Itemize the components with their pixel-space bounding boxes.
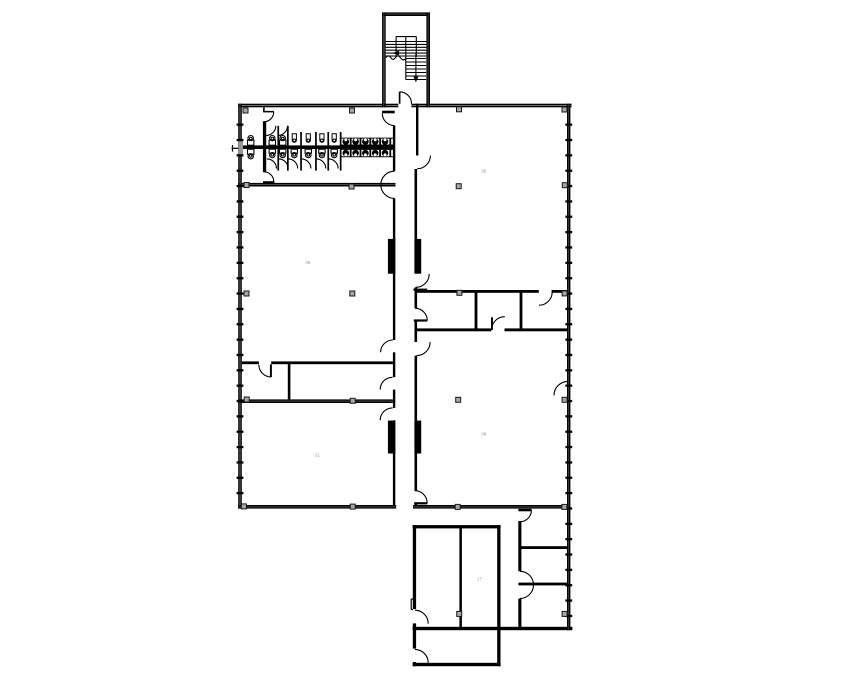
svg-text:06: 06: [306, 260, 311, 265]
svg-text:17: 17: [477, 577, 482, 582]
svg-text:05: 05: [482, 169, 487, 174]
svg-text:08: 08: [482, 432, 487, 437]
svg-text:21: 21: [315, 453, 320, 458]
